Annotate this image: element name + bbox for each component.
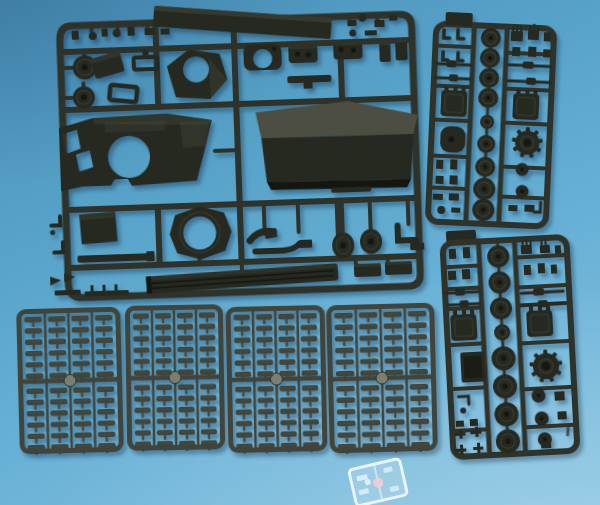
track-link-highlight	[280, 326, 293, 328]
track-link-stub	[264, 376, 267, 381]
top-plate-part	[445, 12, 473, 26]
hull-and-fittings-sprue	[41, 0, 426, 299]
track-link-stub	[264, 365, 267, 370]
track-link-stub	[58, 427, 61, 432]
fuel-drum-part	[333, 41, 363, 60]
track-link-stub	[185, 401, 187, 406]
track-link-stub	[59, 449, 62, 454]
track-link-highlight	[136, 386, 149, 388]
running-gear-sprue-upper	[428, 12, 555, 227]
track-link-stub	[286, 376, 289, 381]
track-link-stub	[345, 426, 348, 431]
track-link-highlight	[202, 408, 215, 410]
hull-roof-plate-part	[153, 6, 332, 39]
track-link-highlight	[259, 372, 272, 374]
comb-fittings-shape	[544, 32, 551, 41]
small-fittings-row-shape	[89, 32, 97, 40]
track-link-stub	[394, 413, 397, 418]
turret-shell-part	[166, 48, 228, 100]
track-link-stub	[163, 412, 165, 417]
track-link-stub	[162, 330, 164, 335]
small-fittings-row-shape	[144, 28, 154, 35]
small-fittings-row-shape	[538, 263, 546, 273]
track-link-highlight	[180, 431, 193, 433]
track-link-stub	[80, 355, 83, 360]
track-link-highlight	[257, 315, 270, 317]
track-link-highlight	[73, 317, 88, 319]
track-link-stub	[288, 448, 290, 453]
comb-fittings-shape	[520, 26, 522, 32]
small-fittings-row-shape	[374, 20, 384, 27]
track-link-highlight	[50, 329, 65, 331]
track-link-stub	[368, 341, 371, 346]
track-link-stub	[142, 435, 144, 440]
track-link-highlight	[28, 412, 43, 414]
track-link-stub	[369, 414, 372, 419]
track-link-highlight	[26, 341, 41, 343]
small-fittings-shape	[437, 206, 445, 214]
tow-bar-part-shape	[287, 75, 331, 84]
comb-fittings-shape	[511, 31, 523, 42]
track-link-stub	[309, 402, 312, 407]
track-link-highlight	[75, 399, 90, 401]
track-link-stub	[418, 412, 421, 417]
track-link-highlight	[280, 315, 293, 317]
track-link-highlight	[282, 432, 295, 434]
track-link-stub	[80, 377, 83, 382]
track-link-highlight	[259, 387, 272, 389]
track-link-stub	[308, 353, 311, 358]
track-link-stub	[206, 318, 208, 323]
track-link-stub	[140, 330, 142, 335]
track-link-highlight	[136, 431, 149, 433]
track-link-stub	[163, 375, 165, 380]
track-link-stub	[287, 391, 290, 396]
track-link-highlight	[303, 349, 316, 351]
track-link-stub	[59, 438, 62, 443]
small-fittings-row	[50, 271, 129, 298]
track-link-stub	[184, 318, 186, 323]
track-link-stub	[286, 365, 289, 370]
track-link-stub	[242, 365, 245, 370]
small-fittings-row-shape	[524, 265, 532, 275]
track-link-stub	[140, 319, 142, 324]
exhaust-pipe-part-shape	[299, 240, 312, 248]
casemate-box-part-shape	[261, 133, 415, 184]
track-link-stub	[344, 365, 347, 370]
track-link-stub	[367, 318, 370, 323]
track-link-highlight	[26, 318, 41, 320]
track-link-stub	[417, 363, 420, 368]
track-link-stub	[343, 341, 346, 346]
small-fittings-shape	[477, 443, 481, 453]
track-link-highlight	[157, 348, 170, 350]
track-link-highlight	[238, 433, 251, 435]
track-link-highlight	[157, 337, 170, 339]
small-fittings-shape	[541, 442, 551, 449]
track-link-stub	[185, 412, 187, 417]
track-link-stub	[142, 447, 144, 452]
access-panel-part	[90, 51, 125, 79]
track-link-stub	[207, 412, 209, 417]
track-link-highlight	[134, 315, 147, 317]
track-link-stub	[395, 436, 398, 441]
track-link-stub	[56, 344, 59, 349]
small-fittings-row-shape	[101, 29, 107, 37]
track-link-highlight	[74, 351, 89, 353]
track-link-highlight	[52, 411, 67, 413]
track-link-highlight	[98, 388, 113, 390]
track-link-highlight	[158, 431, 171, 433]
track-link-stub	[264, 354, 267, 359]
track-link-stub	[162, 318, 164, 323]
track-link-stub	[57, 378, 60, 383]
track-link-stub	[265, 437, 268, 442]
track-link-highlight	[158, 420, 171, 422]
track-link-stub	[417, 339, 420, 344]
track-link-stub	[418, 401, 421, 406]
access-panel-part	[79, 211, 117, 244]
track-link-stub	[342, 318, 345, 323]
track-link-stub	[35, 439, 38, 444]
track-link-highlight	[281, 360, 294, 362]
track-link-highlight	[96, 316, 111, 318]
track-link-highlight	[73, 339, 88, 341]
track-link-stub	[308, 364, 311, 369]
comb-fittings-shape	[529, 25, 531, 31]
track-link-highlight	[302, 337, 315, 339]
small-fittings-row-shape	[525, 239, 527, 246]
tow-bar-part-shape	[303, 82, 312, 88]
track-link-stub	[104, 392, 107, 397]
track-link-highlight	[180, 408, 193, 410]
track-link-stub	[263, 342, 266, 347]
track-link-stub	[288, 437, 291, 442]
track-link-sprue-3	[228, 308, 325, 454]
track-link-highlight	[135, 349, 148, 351]
track-link-stub	[141, 375, 143, 380]
track-link-stub	[206, 329, 208, 334]
track-link-stub	[241, 331, 244, 336]
track-link-highlight	[50, 340, 65, 342]
track-link-stub	[310, 436, 313, 441]
track-link-stub	[106, 448, 109, 453]
track-link-highlight	[52, 434, 67, 436]
track-link-stub	[164, 424, 166, 429]
track-link-stub	[242, 403, 244, 408]
track-link-highlight	[178, 314, 191, 316]
track-link-highlight	[201, 359, 214, 361]
axle-part-shape	[459, 300, 468, 307]
track-link-stub	[184, 329, 186, 334]
track-link-stub	[308, 330, 311, 335]
track-link-highlight	[259, 410, 272, 412]
track-link-highlight	[236, 350, 249, 352]
track-link-stub	[307, 318, 310, 323]
track-link-highlight	[29, 435, 44, 437]
track-link-highlight	[180, 397, 193, 399]
track-link-highlight	[27, 374, 42, 376]
track-link-stub	[419, 424, 422, 429]
track-link-stub	[164, 446, 166, 451]
axle-part-shape	[523, 61, 534, 68]
small-fittings	[452, 396, 483, 455]
track-link-highlight	[201, 347, 214, 349]
axle-part-shape	[449, 74, 458, 81]
track-link-stub	[263, 319, 266, 324]
track-link-stub	[243, 415, 246, 420]
track-link-highlight	[260, 444, 273, 446]
track-link-stub	[285, 319, 288, 324]
track-link-highlight	[236, 361, 249, 363]
hatch-part-shape	[462, 310, 466, 315]
track-link-stub	[345, 403, 348, 408]
track-link-stub	[419, 436, 422, 441]
hatch-part-shape	[529, 307, 533, 312]
running-gear-sprue-lower	[442, 225, 578, 457]
track-link-stub	[243, 426, 246, 431]
track-link-stub	[141, 364, 143, 369]
small-fittings-row-shape	[365, 30, 377, 35]
track-link-highlight	[303, 386, 316, 388]
comb-fittings-shape	[528, 47, 536, 57]
hatch-part-shape	[444, 86, 448, 91]
track-link-stub	[206, 352, 208, 357]
fuel-drum-part	[288, 44, 318, 63]
track-link-highlight	[238, 445, 251, 447]
track-link-highlight	[179, 370, 192, 372]
track-link-stub	[81, 404, 84, 409]
track-link-highlight	[305, 443, 318, 445]
track-link-highlight	[237, 388, 250, 390]
track-link-highlight	[179, 325, 192, 327]
track-link-highlight	[157, 326, 170, 328]
comb-fittings-shape	[528, 30, 539, 40]
comb-fittings-shape	[516, 25, 518, 32]
track-link-stub	[241, 320, 244, 325]
track-link-stub	[344, 391, 347, 396]
small-fittings-shape	[451, 207, 460, 212]
track-link-stub	[141, 413, 143, 418]
track-link-stub	[416, 328, 419, 333]
small-fittings-row-shape	[102, 285, 105, 292]
track-link-stub	[368, 352, 371, 357]
photo-canvas	[0, 0, 600, 505]
hatch-part-shape	[470, 310, 474, 315]
track-link-stub	[56, 333, 59, 338]
track-link-stub	[184, 352, 186, 357]
track-link-stub	[391, 317, 394, 322]
track-link-stub	[103, 343, 106, 348]
small-fittings-shape	[557, 411, 566, 419]
track-link-stub	[394, 401, 397, 406]
track-link-highlight	[29, 423, 44, 425]
small-fittings-shape	[475, 427, 479, 437]
small-fittings-row-shape	[347, 20, 356, 26]
track-link-highlight	[282, 444, 295, 446]
track-link-highlight	[136, 409, 149, 411]
return-roller-parts	[531, 388, 552, 447]
track-link-highlight	[258, 350, 271, 352]
track-link-stub	[185, 389, 187, 394]
track-link-stub	[163, 401, 165, 406]
drive-sprocket-part	[529, 349, 564, 383]
track-link-highlight	[76, 433, 91, 435]
track-link-stub	[419, 447, 422, 452]
flat-plate-part	[354, 261, 412, 277]
track-link-stub	[57, 393, 60, 398]
track-link-stub	[393, 390, 396, 395]
track-link-highlight	[280, 349, 293, 351]
track-link-stub	[392, 352, 395, 357]
track-link-stub	[163, 364, 165, 369]
track-link-stub	[310, 447, 313, 452]
track-link-stub	[141, 390, 143, 395]
comb-fittings-shape	[543, 49, 550, 57]
track-link-highlight	[180, 385, 193, 387]
small-fittings-shape	[508, 205, 517, 211]
small-fittings-row-shape	[462, 269, 471, 279]
track-link-stub	[105, 403, 108, 408]
axle-part-shape	[446, 60, 456, 67]
track-link-stub	[35, 427, 38, 432]
track-link-highlight	[235, 327, 248, 329]
track-link-highlight	[304, 398, 317, 400]
track-link-highlight	[258, 338, 271, 340]
small-fittings-row-shape	[72, 31, 79, 40]
track-link-stub	[184, 341, 186, 346]
track-link-stub	[287, 425, 290, 430]
track-link-stub	[34, 416, 37, 421]
track-link-stub	[33, 356, 36, 361]
track-link-highlight	[137, 443, 150, 445]
casemate-front-plate-part-shape	[180, 120, 212, 148]
track-link-highlight	[156, 314, 169, 316]
comb-fittings-shape	[512, 47, 520, 56]
small-fittings-shape	[459, 429, 463, 439]
track-link-highlight	[282, 421, 295, 423]
track-link-stub	[162, 341, 164, 346]
track-link-stub	[186, 446, 188, 451]
small-fittings-shape	[436, 160, 443, 169]
axle-part	[436, 60, 471, 82]
track-link-highlight	[98, 361, 113, 363]
hatch-part-shape	[533, 90, 537, 95]
track-link-stub	[82, 438, 85, 443]
track-link-stub	[346, 449, 349, 454]
track-link-stub	[79, 332, 82, 337]
track-link-stub	[186, 435, 188, 440]
hook-fittings	[50, 216, 64, 252]
track-link-stub	[140, 341, 142, 346]
track-link-stub	[287, 414, 290, 419]
track-link-stub	[310, 425, 313, 430]
small-fittings-shape	[450, 159, 457, 169]
track-link-stub	[242, 377, 245, 382]
track-link-stub	[266, 448, 269, 453]
small-fittings-shape	[460, 407, 466, 413]
track-link-highlight	[201, 370, 214, 372]
track-link-stub	[56, 321, 59, 326]
track-link-stub	[393, 363, 396, 368]
track-link-stub	[162, 352, 164, 357]
hatch-part-shape	[461, 87, 465, 92]
track-link-stub	[185, 374, 187, 379]
track-link-highlight	[303, 371, 316, 373]
track-link-stub	[164, 435, 166, 440]
plate-part-shape	[463, 356, 482, 379]
small-fittings-row-shape	[540, 240, 542, 246]
small-fittings	[508, 201, 540, 212]
track-link-stub	[286, 353, 289, 358]
track-link-stub	[369, 402, 372, 407]
track-link-highlight	[202, 396, 215, 398]
return-roller-parts	[514, 163, 530, 199]
tow-bar-part	[287, 75, 331, 90]
track-link-highlight	[136, 420, 149, 422]
track-link-stub	[368, 364, 371, 369]
small-fittings-shape	[433, 194, 443, 200]
track-link-highlight	[99, 421, 114, 423]
track-link-highlight	[201, 336, 214, 338]
hatch-part	[440, 86, 467, 117]
track-link-highlight	[49, 317, 64, 319]
track-link-highlight	[97, 350, 112, 352]
track-link-stub	[241, 343, 244, 348]
track-link-sprue-2	[127, 307, 222, 452]
track-link-stub	[394, 425, 397, 430]
track-link-stub	[286, 342, 289, 347]
hatch-part	[526, 306, 554, 337]
axle-part	[508, 61, 551, 86]
small-fittings-row-shape	[349, 29, 356, 36]
track-link-highlight	[75, 388, 90, 390]
track-link-highlight	[52, 400, 67, 402]
frame-part-shape	[142, 50, 148, 56]
small-fittings-row-shape	[114, 284, 117, 291]
track-link-stub	[82, 426, 85, 431]
track-link-highlight	[302, 314, 315, 316]
track-link-highlight	[157, 371, 170, 373]
open-frame-part-shape	[109, 85, 137, 102]
round-hatch-part	[72, 86, 95, 109]
drive-sprocket-part	[511, 126, 544, 158]
track-link-highlight	[28, 401, 43, 403]
track-link-stub	[265, 426, 268, 431]
track-link-stub	[81, 392, 84, 397]
track-link-highlight	[258, 327, 271, 329]
small-fittings-shape	[524, 205, 534, 212]
track-link-stub	[207, 400, 209, 405]
track-link-highlight	[235, 316, 248, 318]
track-link-stub	[370, 425, 373, 430]
track-link-highlight	[27, 363, 42, 365]
clear-parts-sprue	[349, 458, 408, 505]
small-fittings-row-shape	[127, 27, 134, 36]
track-link-stub	[243, 449, 246, 454]
track-link-stub	[80, 366, 83, 371]
axle-part-shape	[526, 78, 536, 85]
track-link-highlight	[202, 385, 215, 387]
small-fittings-shape	[456, 421, 464, 427]
track-link-stub	[82, 449, 85, 454]
track-link-highlight	[304, 409, 317, 411]
track-link-stub	[103, 354, 106, 359]
track-link-stub	[308, 341, 311, 346]
track-link-highlight	[99, 433, 114, 435]
track-link-stub	[207, 374, 209, 379]
track-link-highlight	[158, 397, 171, 399]
